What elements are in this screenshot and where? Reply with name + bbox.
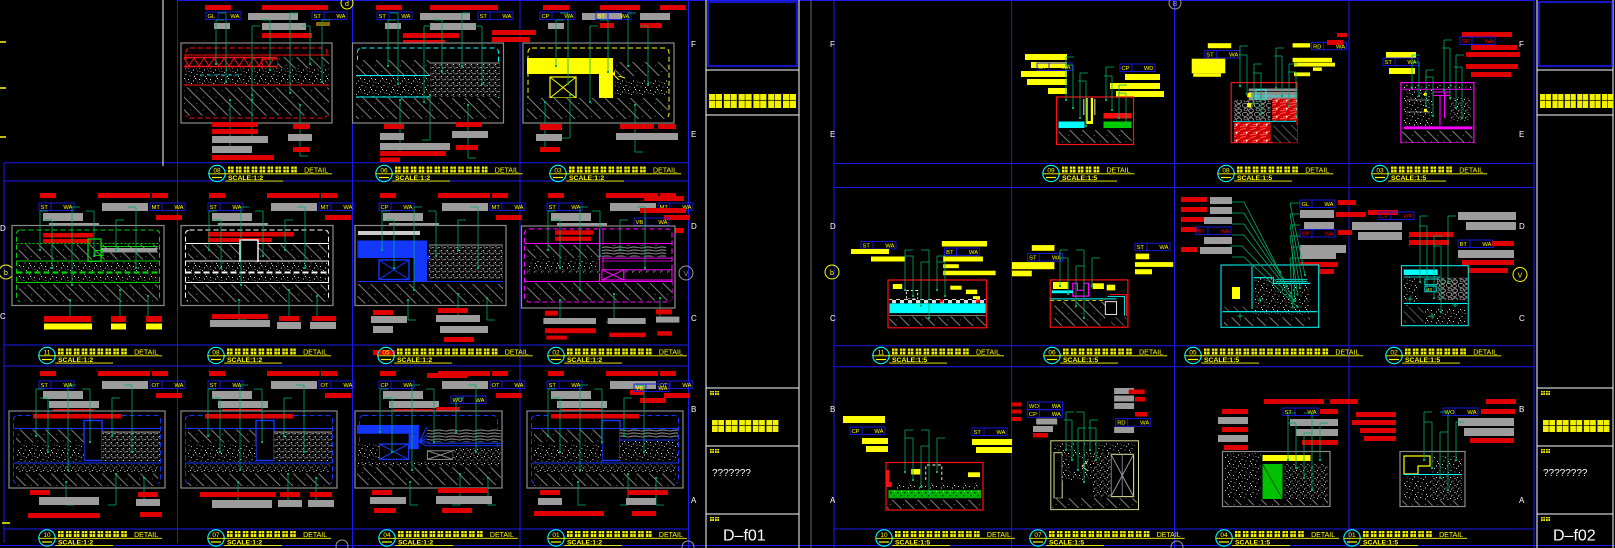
svg-text:DETAIL: DETAIL (653, 167, 677, 174)
svg-text:MT: MT (321, 205, 330, 211)
svg-text:WA: WA (571, 205, 580, 211)
svg-text:DETAIL: DETAIL (1459, 167, 1483, 174)
svg-text:WA: WA (174, 205, 183, 211)
svg-text:D–f01: D–f01 (723, 528, 766, 545)
svg-text:DETAIL: DETAIL (1139, 349, 1163, 356)
svg-text:B: B (830, 405, 835, 414)
svg-text:WA: WA (874, 429, 883, 435)
svg-text:WA: WA (174, 383, 183, 389)
svg-text:F: F (1519, 40, 1524, 49)
svg-text:03: 03 (554, 167, 562, 174)
svg-text:DETAIL: DETAIL (1311, 532, 1335, 539)
svg-text:DETAIL: DETAIL (134, 532, 158, 539)
svg-text:F: F (830, 40, 835, 49)
svg-text:BT: BT (946, 250, 954, 256)
svg-text:MT: MT (492, 205, 501, 211)
svg-text:WA: WA (1220, 229, 1229, 235)
svg-text:D–f02: D–f02 (1553, 528, 1596, 545)
svg-text:GP: GP (1462, 39, 1471, 45)
svg-text:DETAIL: DETAIL (505, 349, 529, 356)
svg-text:????????: ???????? (1543, 468, 1588, 479)
svg-text:F: F (691, 40, 696, 49)
svg-text:ST: ST (314, 14, 322, 20)
svg-text:ST: ST (1029, 256, 1037, 262)
svg-text:WA: WA (1140, 421, 1149, 427)
svg-text:CP: CP (852, 429, 860, 435)
svg-text:WA: WA (336, 14, 345, 20)
svg-text:WA: WA (885, 244, 894, 250)
svg-text:OT: OT (152, 383, 161, 389)
svg-text:B: B (1173, 1, 1178, 8)
svg-text:WA: WA (1324, 202, 1333, 208)
svg-text:DETAIL: DETAIL (134, 349, 158, 356)
svg-text:ST: ST (379, 14, 387, 20)
svg-text:07: 07 (1034, 532, 1042, 539)
svg-text:DETAIL: DETAIL (1157, 532, 1181, 539)
svg-text:D: D (1519, 222, 1525, 231)
svg-text:???????: ??????? (712, 468, 751, 479)
svg-text:DETAIL: DETAIL (659, 349, 683, 356)
svg-text:ST: ST (549, 205, 557, 211)
svg-text:11: 11 (878, 349, 885, 356)
svg-text:CP: CP (1381, 214, 1389, 220)
svg-text:RD: RD (1313, 44, 1321, 50)
svg-text:ST: ST (974, 430, 982, 436)
svg-text:08: 08 (213, 167, 221, 174)
svg-text:DETAIL: DETAIL (1473, 349, 1497, 356)
svg-text:V: V (1518, 273, 1523, 280)
svg-text:CP: CP (1029, 412, 1037, 418)
svg-text:11: 11 (44, 349, 51, 356)
svg-text:WA: WA (564, 14, 573, 20)
svg-text:DETAIL: DETAIL (490, 532, 514, 539)
svg-text:VB: VB (636, 220, 644, 226)
svg-text:BT: BT (1460, 242, 1468, 248)
svg-text:CP: CP (1122, 66, 1130, 72)
svg-text:WA: WA (1484, 39, 1493, 45)
svg-text:BT: BT (598, 14, 606, 20)
svg-text:WA: WA (658, 386, 667, 392)
svg-text:d: d (345, 1, 349, 8)
svg-text:E: E (691, 130, 696, 139)
svg-text:DETAIL: DETAIL (987, 532, 1011, 539)
svg-text:BT: BT (1198, 229, 1206, 235)
svg-text:A: A (691, 496, 697, 505)
svg-text:CP: CP (1302, 232, 1310, 238)
svg-text:ST: ST (41, 383, 49, 389)
svg-text:WO: WO (1445, 410, 1455, 416)
svg-text:WA: WA (343, 205, 352, 211)
svg-text:CP: CP (381, 383, 389, 389)
svg-text:WA: WA (403, 383, 412, 389)
svg-text:WA: WA (658, 220, 667, 226)
svg-text:ST: ST (210, 383, 218, 389)
svg-text:WA: WA (502, 14, 511, 20)
svg-text:DETAIL: DETAIL (304, 167, 328, 174)
svg-text:DETAIL: DETAIL (1107, 167, 1131, 174)
svg-text:DETAIL: DETAIL (303, 532, 327, 539)
svg-text:02: 02 (552, 349, 560, 356)
svg-text:D: D (691, 222, 697, 231)
svg-text:WA: WA (230, 14, 239, 20)
svg-text:ST: ST (1385, 60, 1393, 66)
svg-text:ST: ST (480, 14, 488, 20)
svg-text:01: 01 (552, 532, 560, 539)
svg-text:B: B (691, 405, 696, 414)
svg-text:WA: WA (1467, 410, 1476, 416)
svg-text:WA: WA (232, 205, 241, 211)
svg-text:E: E (1519, 130, 1524, 139)
svg-text:02: 02 (1390, 349, 1398, 356)
svg-text:WA: WA (1324, 232, 1333, 238)
svg-text:WA: WA (343, 383, 352, 389)
svg-text:CP: CP (381, 205, 389, 211)
svg-text:04: 04 (383, 532, 391, 539)
svg-text:WA: WA (514, 205, 523, 211)
svg-text:V: V (684, 271, 689, 278)
svg-text:WO: WO (1029, 404, 1039, 410)
svg-text:05: 05 (382, 349, 390, 356)
svg-text:06: 06 (1048, 349, 1056, 356)
svg-text:A: A (830, 496, 836, 505)
svg-text:WA: WA (1052, 404, 1061, 410)
svg-text:WD: WD (1144, 66, 1154, 72)
svg-text:ST: ST (210, 205, 218, 211)
svg-text:WA: WA (403, 205, 412, 211)
svg-text:D: D (830, 222, 836, 231)
svg-text:b: b (4, 270, 8, 277)
svg-text:DETAIL: DETAIL (1305, 167, 1329, 174)
svg-text:RD: RD (1117, 421, 1125, 427)
svg-text:08: 08 (1222, 167, 1230, 174)
svg-text:WO: WO (453, 398, 463, 404)
svg-text:WA: WA (1482, 242, 1491, 248)
svg-text:ST: ST (549, 383, 557, 389)
svg-text:10: 10 (880, 532, 888, 539)
svg-text:07: 07 (212, 532, 220, 539)
svg-text:WA: WA (1403, 214, 1412, 220)
svg-text:WA: WA (1229, 53, 1238, 59)
svg-text:ST: ST (41, 205, 49, 211)
svg-text:C: C (1519, 314, 1525, 323)
svg-text:B: B (1519, 405, 1524, 414)
svg-text:GT: GT (1039, 65, 1048, 71)
svg-text:ST: ST (1137, 245, 1145, 251)
svg-text:ST: ST (863, 244, 871, 250)
svg-text:WA: WA (969, 250, 978, 256)
svg-text:WA: WA (996, 430, 1005, 436)
svg-text:OT: OT (492, 383, 501, 389)
svg-text:09: 09 (1047, 167, 1055, 174)
svg-text:D: D (0, 224, 6, 233)
svg-text:DETAIL: DETAIL (495, 167, 519, 174)
svg-text:C: C (691, 314, 697, 323)
svg-text:E: E (830, 130, 835, 139)
svg-text:WA: WA (1336, 44, 1345, 50)
svg-text:ST: ST (1206, 53, 1214, 59)
svg-text:08: 08 (212, 349, 220, 356)
svg-text:WA: WA (682, 383, 691, 389)
svg-text:WA: WA (571, 383, 580, 389)
svg-text:WA: WA (475, 398, 484, 404)
svg-text:OT: OT (321, 383, 330, 389)
svg-text:A: A (1519, 496, 1525, 505)
svg-text:GL: GL (1302, 202, 1311, 208)
svg-text:DETAIL: DETAIL (976, 349, 1000, 356)
svg-text:DETAIL: DETAIL (1335, 349, 1359, 356)
svg-text:DETAIL: DETAIL (659, 532, 683, 539)
svg-text:WA: WA (514, 383, 523, 389)
svg-text:DETAIL: DETAIL (1439, 532, 1463, 539)
svg-text:WA: WA (401, 14, 410, 20)
svg-text:GL: GL (208, 14, 217, 20)
svg-text:VB: VB (636, 386, 644, 392)
svg-text:01: 01 (1348, 532, 1356, 539)
svg-text:06: 06 (380, 167, 388, 174)
svg-text:C: C (0, 312, 6, 321)
svg-text:WA: WA (1052, 412, 1061, 418)
svg-text:CP: CP (542, 14, 550, 20)
svg-text:WA: WA (1159, 245, 1168, 251)
svg-text:05: 05 (1189, 349, 1197, 356)
svg-text:03: 03 (1376, 167, 1384, 174)
svg-text:MT: MT (152, 205, 161, 211)
svg-text:b: b (830, 270, 834, 277)
svg-text:WA: WA (63, 205, 72, 211)
svg-text:10: 10 (43, 532, 51, 539)
svg-text:04: 04 (1220, 532, 1228, 539)
svg-text:C: C (830, 314, 836, 323)
svg-text:DETAIL: DETAIL (303, 349, 327, 356)
